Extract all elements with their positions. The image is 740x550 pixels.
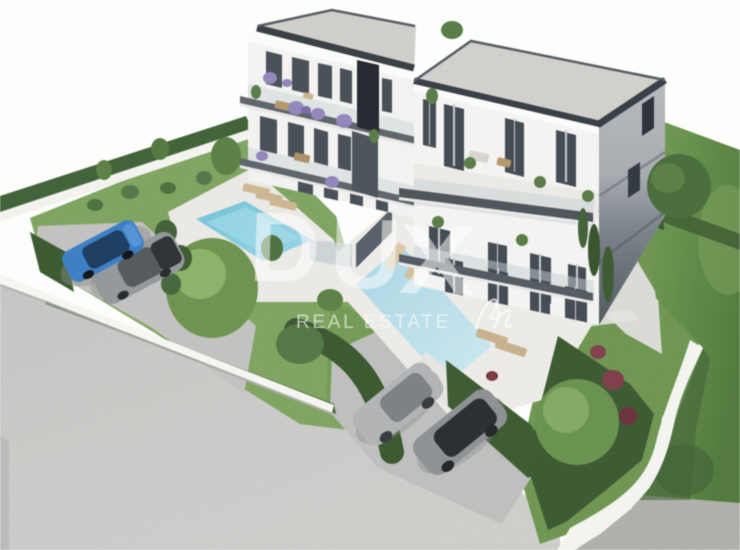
svg-text:D: D xyxy=(248,191,323,304)
svg-text:REAL ESTATE: REAL ESTATE xyxy=(296,312,451,333)
svg-text:X: X xyxy=(397,203,477,316)
svg-text:U: U xyxy=(329,197,404,310)
